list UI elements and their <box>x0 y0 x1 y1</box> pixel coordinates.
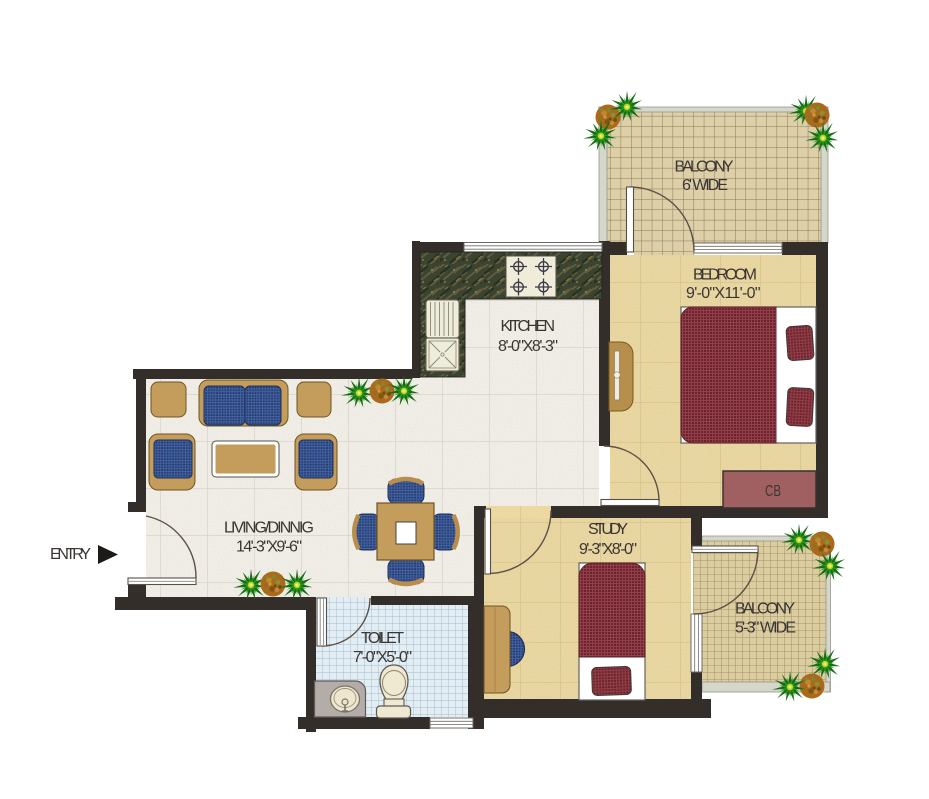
svg-text:BEDROOM: BEDROOM <box>693 267 757 284</box>
svg-text:KITCHEN: KITCHEN <box>501 318 556 335</box>
svg-text:STUDY: STUDY <box>588 521 628 538</box>
svg-text:TOILET: TOILET <box>361 630 404 647</box>
svg-text:5'-3" WIDE: 5'-3" WIDE <box>735 620 796 637</box>
svg-text:9'-0"X11'-0": 9'-0"X11'-0" <box>686 285 761 302</box>
svg-text:7'-0"X5'-0": 7'-0"X5'-0" <box>353 649 412 666</box>
svg-text:9'-3"X8'-0": 9'-3"X8'-0" <box>579 541 637 558</box>
svg-text:6' WIDE: 6' WIDE <box>682 177 728 194</box>
svg-text:BALCONY: BALCONY <box>735 601 795 618</box>
svg-text:LIVING/DINNIG: LIVING/DINNIG <box>224 520 314 537</box>
svg-text:BALCONY: BALCONY <box>675 159 734 176</box>
svg-text:ENTRY: ENTRY <box>50 546 91 563</box>
svg-text:8'-0"X8'-3": 8'-0"X8'-3" <box>498 338 558 355</box>
svg-text:CB: CB <box>765 483 781 500</box>
svg-text:14'-3"X9'-6": 14'-3"X9'-6" <box>236 539 302 556</box>
